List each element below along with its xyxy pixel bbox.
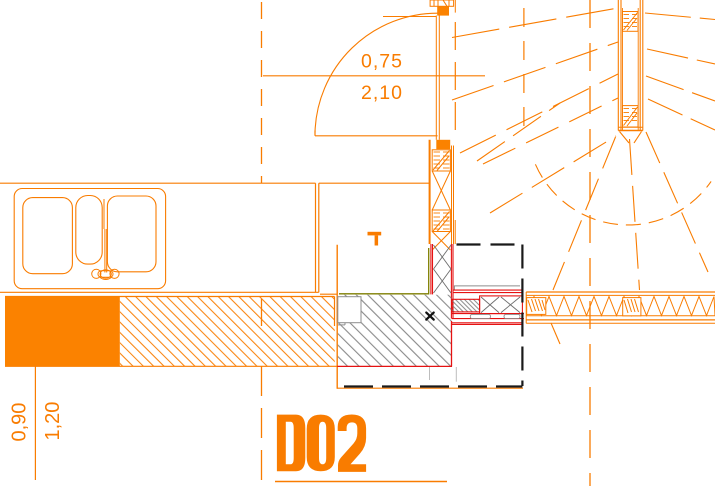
svg-text:2,10: 2,10: [361, 82, 403, 104]
svg-text:1,20: 1,20: [42, 402, 64, 441]
svg-text:0,90: 0,90: [9, 403, 31, 442]
svg-text:0,75: 0,75: [361, 51, 403, 73]
